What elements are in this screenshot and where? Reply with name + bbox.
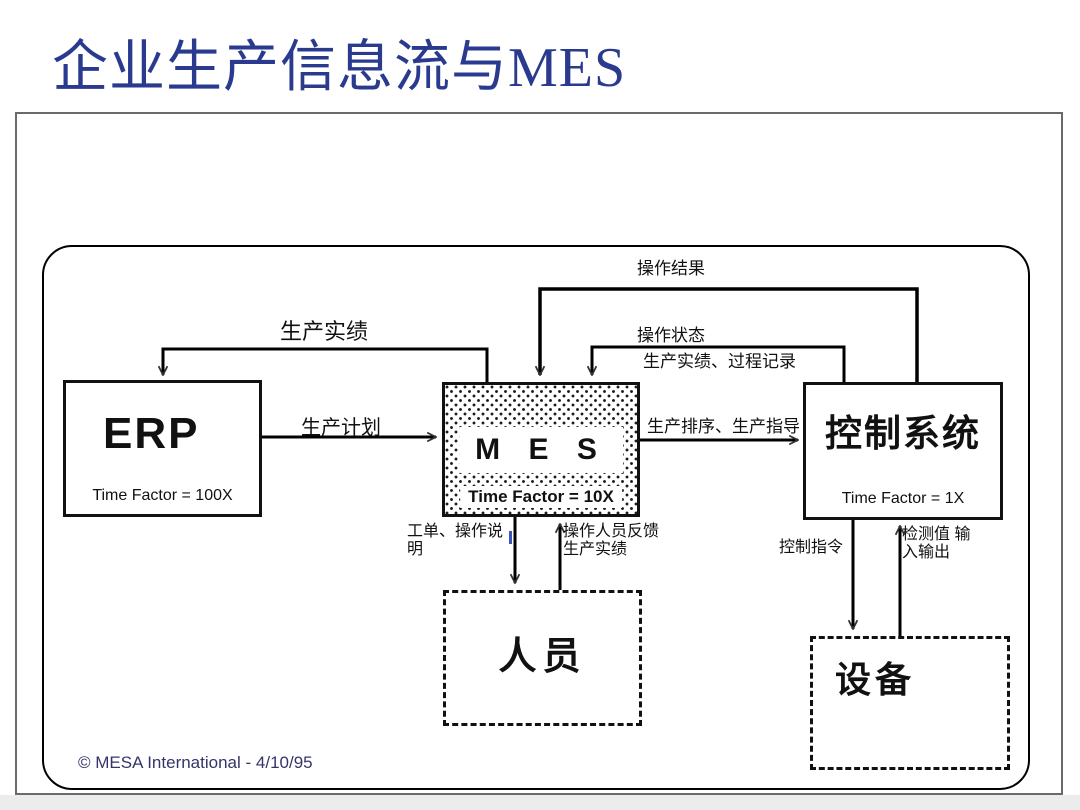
flow-label-production-plan: 生产计划	[301, 411, 381, 440]
mes-box: M E S Time Factor = 10X	[442, 382, 640, 517]
erp-label: ERP	[103, 409, 199, 459]
flow-label-operation-results: 操作结果	[637, 254, 705, 279]
erp-time-factor: Time Factor = 100X	[66, 487, 259, 505]
equipment-box: 设备	[810, 636, 1010, 770]
flow-label-dispatch-guidance: 生产排序、生产指导	[647, 412, 800, 437]
flow-label-production-actuals: 生产实绩	[280, 314, 368, 346]
flow-label-work-orders: 工单、操作说明	[407, 523, 511, 560]
control-system-box: 控制系统 Time Factor = 1X	[803, 382, 1003, 520]
flow-label-control-commands: 控制指令	[779, 533, 843, 557]
mes-time-factor: Time Factor = 10X	[460, 486, 622, 508]
control-system-time-factor: Time Factor = 1X	[806, 490, 1000, 508]
stray-cursor-mark	[509, 531, 512, 544]
flow-label-measured-io: 检测值 输入输出	[902, 526, 978, 563]
mes-label: M E S	[459, 427, 623, 473]
flow-label-operator-feedback: 操作人员反馈 生产实绩	[563, 523, 665, 560]
page-title: 企业生产信息流与MES	[52, 22, 1032, 103]
bottom-gray-strip	[0, 795, 1080, 810]
erp-box: ERP Time Factor = 100X	[63, 380, 262, 517]
equipment-label: 设备	[835, 651, 915, 703]
control-system-label: 控制系统	[806, 403, 1000, 457]
copyright-text: © MESA International - 4/10/95	[78, 753, 313, 773]
flow-label-actuals-process-records: 生产实绩、过程记录	[643, 347, 796, 372]
personnel-label: 人员	[446, 625, 639, 680]
flow-label-operation-status: 操作状态	[637, 321, 705, 346]
personnel-box: 人员	[443, 590, 642, 726]
